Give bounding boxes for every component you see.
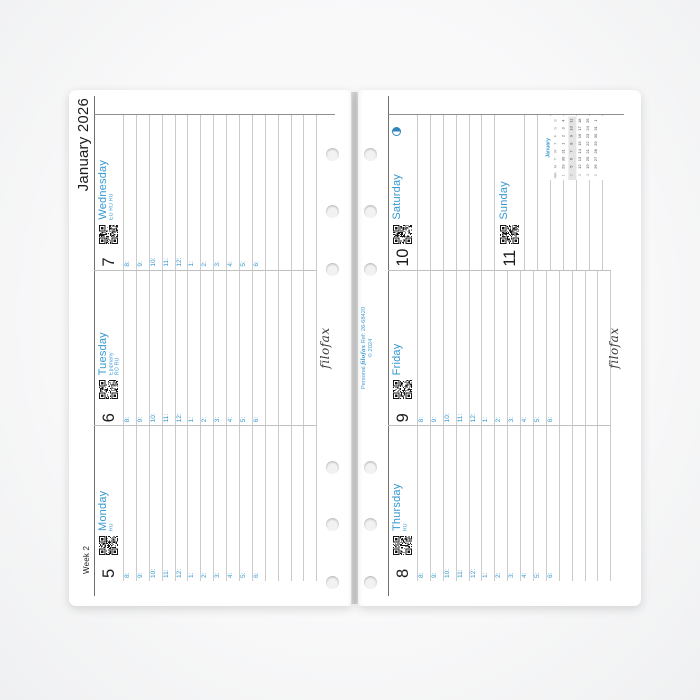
time-grid: 8:9:10:11:12:1:2:3:4:5:6:: [124, 426, 317, 581]
time-label: 4:: [227, 426, 235, 581]
time-label: 1:: [482, 271, 490, 426]
time-label: 6:: [547, 426, 555, 581]
day-header-tuesday: 6 Tuesday EpiphanyRO RU: [94, 271, 124, 426]
time-label: 12:: [470, 271, 478, 426]
time-slot: 9:: [137, 426, 150, 581]
left-page-content: Week 2 January 2026 5 Monday RU 8:9:10:1…: [69, 90, 352, 606]
time-label: 11:: [457, 426, 465, 581]
time-label: 6:: [547, 271, 555, 426]
time-slot: 9:: [137, 271, 150, 426]
mini-calendar-cell: 26: [593, 163, 601, 171]
day-number: 8: [395, 569, 411, 578]
time-label: 8:: [124, 115, 132, 270]
time-slot: [573, 271, 586, 426]
day-number: 6: [101, 413, 117, 422]
mini-calendar-cell: 30: [593, 132, 601, 140]
time-label: 11:: [457, 271, 465, 426]
binder-hole: [326, 205, 339, 218]
time-label: 2:: [495, 426, 503, 581]
time-label: 2:: [201, 115, 209, 270]
time-slot: 1:: [188, 115, 201, 270]
holiday-note: Epiphany: [109, 353, 114, 376]
time-slot: [482, 115, 495, 270]
day-header-saturday: 10 Saturday: [388, 115, 418, 270]
margin-rule: [388, 114, 624, 115]
binder-hole: [326, 576, 339, 589]
time-slot: 6:: [253, 271, 266, 426]
week-grid-left: 5 Monday RU 8:9:10:11:12:1:2:3:4:5:6: 6: [94, 115, 317, 581]
photo-background: Week 2 January 2026 5 Monday RU 8:9:10:1…: [0, 0, 700, 700]
day-title: Thursday RU: [391, 484, 411, 531]
time-slot: [266, 115, 279, 270]
time-label: 12:: [176, 115, 184, 270]
time-slot: [304, 115, 317, 270]
time-label: 10:: [150, 426, 158, 581]
time-label: 6:: [253, 426, 261, 581]
time-slot: [470, 115, 483, 270]
time-slot: 4:: [521, 271, 534, 426]
time-slot: 8:: [124, 115, 137, 270]
time-label: 11:: [163, 271, 171, 426]
holiday-note: RU: [403, 523, 408, 531]
time-grid: 8:9:10:11:12:1:2:3:4:5:6:: [124, 115, 317, 270]
time-grid: 8:9:10:11:12:1:2:3:4:5:6:: [418, 271, 611, 426]
day-title: Wednesday EG RO RU: [97, 160, 117, 220]
time-slot: [560, 271, 573, 426]
week-label: Week 2: [82, 546, 91, 574]
time-label: 8:: [124, 271, 132, 426]
time-slot: 9:: [431, 271, 444, 426]
time-label: 4:: [227, 115, 235, 270]
mini-calendar-cell: 28: [593, 147, 601, 155]
time-grid: 8:9:10:11:12:1:2:3:4:5:6:: [418, 426, 611, 581]
time-label: 11:: [163, 426, 171, 581]
time-label: 8:: [418, 426, 426, 581]
mini-calendar-cell: 27: [593, 155, 601, 163]
time-label: 9:: [137, 426, 145, 581]
time-label: 12:: [176, 426, 184, 581]
time-slot: 4:: [227, 115, 240, 270]
binder-hole: [364, 148, 377, 161]
day-number: 11: [502, 250, 518, 267]
time-slot: [573, 426, 586, 581]
qr-code-icon: [393, 380, 412, 399]
day-name: Monday: [97, 491, 109, 531]
time-slot: 8:: [124, 426, 137, 581]
time-slot: 1:: [188, 271, 201, 426]
qr-code-icon: [99, 536, 118, 555]
day-header-wednesday: 7 Wednesday EG RO RU: [94, 115, 124, 270]
day-column-weekend: 10 Saturday 11 Sunday: [388, 115, 611, 270]
time-slot: 4:: [227, 426, 240, 581]
day-column-wednesday: 7 Wednesday EG RO RU 8:9:10:11:12:1:2:3:…: [94, 115, 317, 270]
binder-hole: [326, 148, 339, 161]
left-page: Week 2 January 2026 5 Monday RU 8:9:10:1…: [69, 90, 352, 606]
time-slot: 10:: [150, 426, 163, 581]
day-title: Tuesday EpiphanyRO RU: [97, 332, 124, 375]
time-slot: 2:: [495, 271, 508, 426]
time-slot: 11:: [163, 271, 176, 426]
time-slot: 8:: [418, 426, 431, 581]
time-label: 3:: [214, 271, 222, 426]
time-slot: [266, 271, 279, 426]
time-slot: 10:: [150, 115, 163, 270]
time-slot: 3:: [214, 271, 227, 426]
day-name: Sunday: [498, 181, 510, 220]
qr-code-icon: [393, 225, 412, 244]
time-label: 5:: [534, 426, 542, 581]
holiday-note: EG RO RU: [109, 193, 114, 220]
time-slot: 12:: [470, 426, 483, 581]
sunday-area: January WKMTWTFSS12930311234256789101131…: [525, 115, 602, 270]
time-slot: 4:: [227, 271, 240, 426]
mini-calendar-cell: 31: [593, 125, 601, 133]
title-bar: Week 2 January 2026: [69, 96, 95, 596]
binder-hole: [364, 461, 377, 474]
qr-code-icon: [99, 380, 118, 399]
time-slot: 10:: [444, 426, 457, 581]
day-number: 9: [395, 413, 411, 422]
week-grid-right: 8 Thursday RU 8:9:10:11:12:1:2:3:4:5:6: …: [388, 115, 611, 581]
time-grid: 8:9:10:11:12:1:2:3:4:5:6:: [124, 271, 317, 426]
time-slot: 5:: [240, 115, 253, 270]
day-title: Saturday: [391, 174, 403, 220]
time-slot: 2:: [495, 426, 508, 581]
time-slot: [418, 115, 431, 270]
day-title: Monday RU: [97, 491, 117, 531]
day-number: 10: [395, 249, 411, 267]
time-label: 1:: [188, 271, 196, 426]
time-slot: 3:: [214, 426, 227, 581]
time-label: 9:: [137, 271, 145, 426]
right-page: Personal filofax Ref: 26-68420 © 2024 8 …: [358, 90, 641, 606]
day-column-friday: 9 Friday 8:9:10:11:12:1:2:3:4:5:6:: [388, 270, 611, 426]
time-slot: [279, 271, 292, 426]
time-slot: 2:: [201, 115, 214, 270]
time-label: 1:: [188, 426, 196, 581]
mini-month-calendar: January WKMTWTFSS12930311234256789101131…: [545, 116, 603, 180]
time-label: 1:: [482, 426, 490, 581]
day-number: 7: [101, 258, 117, 267]
time-slot: [304, 426, 317, 581]
time-slot: [279, 426, 292, 581]
day-column-thursday: 8 Thursday RU 8:9:10:11:12:1:2:3:4:5:6:: [388, 425, 611, 581]
time-slot: [444, 115, 457, 270]
mini-calendar-cell: 5: [593, 170, 601, 179]
time-slot: 3:: [214, 115, 227, 270]
time-label: 10:: [150, 115, 158, 270]
time-slot: [525, 115, 538, 270]
time-slot: 11:: [163, 426, 176, 581]
binder-hole: [364, 518, 377, 531]
mini-calendar-grid: WKMTWTFSS1293031123425678910113121314151…: [553, 116, 601, 180]
day-title: Friday: [391, 344, 403, 376]
time-slot: [560, 426, 573, 581]
time-slot: 2:: [201, 271, 214, 426]
time-label: 5:: [240, 426, 248, 581]
time-slot: 3:: [508, 426, 521, 581]
time-slot: 9:: [431, 426, 444, 581]
holiday-note: RO RU: [114, 358, 119, 375]
time-slot: [266, 426, 279, 581]
time-slot: 12:: [176, 115, 189, 270]
day-number: 5: [101, 569, 117, 578]
time-grid: [418, 115, 495, 270]
day-name: Friday: [391, 344, 403, 376]
time-slot: 2:: [201, 426, 214, 581]
time-slot: [586, 271, 599, 426]
time-label: 10:: [444, 426, 452, 581]
day-header-friday: 9 Friday: [388, 271, 418, 426]
day-header-thursday: 8 Thursday RU: [388, 426, 418, 581]
time-label: 6:: [253, 271, 261, 426]
time-slot: [292, 115, 305, 270]
mini-calendar-cell: 29: [593, 140, 601, 148]
day-name: Wednesday: [97, 160, 109, 220]
time-slot: [586, 426, 599, 581]
time-label: 1:: [188, 115, 196, 270]
time-label: 4:: [521, 426, 529, 581]
day-name: Thursday: [391, 484, 403, 531]
time-slot: 1:: [482, 426, 495, 581]
time-slot: 12:: [470, 271, 483, 426]
time-slot: 6:: [253, 115, 266, 270]
time-label: 2:: [201, 426, 209, 581]
time-slot: 10:: [150, 271, 163, 426]
time-slot: 1:: [482, 271, 495, 426]
time-label: 4:: [227, 271, 235, 426]
time-label: 9:: [431, 271, 439, 426]
time-slot: [457, 115, 470, 270]
day-header-monday: 5 Monday RU: [94, 426, 124, 581]
qr-code-icon: [393, 536, 412, 555]
binder-hole: [364, 263, 377, 276]
time-slot: 5:: [534, 271, 547, 426]
time-slot: 6:: [547, 426, 560, 581]
binder-hole: [326, 518, 339, 531]
time-label: 8:: [124, 426, 132, 581]
holiday-note: RU: [109, 523, 114, 531]
day-name: Saturday: [391, 174, 403, 220]
time-label: 3:: [214, 115, 222, 270]
time-slot: 1:: [188, 426, 201, 581]
time-slot: 6:: [253, 426, 266, 581]
time-slot: 9:: [137, 115, 150, 270]
day-title: Sunday: [498, 181, 510, 220]
time-label: 3:: [508, 271, 516, 426]
binder-hole: [326, 461, 339, 474]
moon-phase-icon: [392, 127, 401, 136]
margin-rule: [94, 114, 335, 115]
time-slot: [304, 271, 317, 426]
time-label: 10:: [150, 271, 158, 426]
time-label: 3:: [214, 426, 222, 581]
time-slot: 12:: [176, 426, 189, 581]
time-label: 10:: [444, 271, 452, 426]
time-label: 12:: [176, 271, 184, 426]
qr-code-icon: [500, 225, 519, 244]
time-label: 3:: [508, 426, 516, 581]
time-label: 9:: [431, 426, 439, 581]
time-slot: [292, 271, 305, 426]
time-label: 4:: [521, 271, 529, 426]
time-slot: 11:: [163, 115, 176, 270]
day-header-sunday: 11 Sunday: [495, 115, 525, 270]
time-label: 11:: [163, 115, 171, 270]
time-slot: 5:: [240, 271, 253, 426]
binder-hole: [326, 263, 339, 276]
time-label: 5:: [240, 271, 248, 426]
time-slot: 3:: [508, 271, 521, 426]
time-label: 2:: [495, 271, 503, 426]
binder-hole: [364, 576, 377, 589]
time-label: 5:: [240, 115, 248, 270]
day-name: Tuesday: [97, 332, 109, 375]
time-slot: 8:: [418, 271, 431, 426]
time-label: 6:: [253, 115, 261, 270]
time-slot: 5:: [240, 426, 253, 581]
binder-hole: [364, 205, 377, 218]
time-slot: [292, 426, 305, 581]
time-label: 2:: [201, 271, 209, 426]
time-label: 8:: [418, 271, 426, 426]
month-label: January 2026: [75, 98, 92, 191]
time-slot: 10:: [444, 271, 457, 426]
time-label: 12:: [470, 426, 478, 581]
time-slot: 8:: [124, 271, 137, 426]
time-slot: 11:: [457, 426, 470, 581]
time-label: 9:: [137, 115, 145, 270]
time-slot: 6:: [547, 271, 560, 426]
time-label: 5:: [534, 271, 542, 426]
filofax-logo: filofax: [318, 115, 332, 581]
day-column-monday: 5 Monday RU 8:9:10:11:12:1:2:3:4:5:6:: [94, 425, 317, 581]
qr-code-icon: [99, 225, 118, 244]
right-page-content: Personal filofax Ref: 26-68420 © 2024 8 …: [358, 90, 641, 606]
time-slot: 11:: [457, 271, 470, 426]
mini-calendar-cell: 1: [593, 117, 601, 125]
time-slot: [431, 115, 444, 270]
time-slot: 4:: [521, 426, 534, 581]
day-column-tuesday: 6 Tuesday EpiphanyRO RU 8:9:10:11:12:1:2…: [94, 270, 317, 426]
time-slot: 5:: [534, 426, 547, 581]
time-slot: 12:: [176, 271, 189, 426]
time-slot: [279, 115, 292, 270]
filofax-logo: filofax: [607, 115, 621, 581]
